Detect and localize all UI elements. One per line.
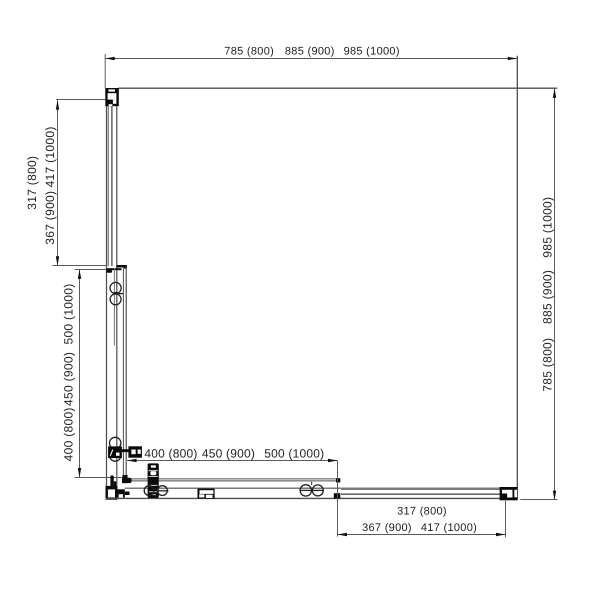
svg-text:417 (1000): 417 (1000)	[43, 126, 57, 187]
svg-text:885 (900): 885 (900)	[285, 45, 335, 57]
svg-text:417 (1000): 417 (1000)	[421, 522, 477, 534]
svg-text:400 (800): 400 (800)	[62, 407, 76, 461]
svg-text:785 (800): 785 (800)	[224, 45, 274, 57]
svg-text:400 (800): 400 (800)	[144, 446, 197, 460]
svg-text:500 (1000): 500 (1000)	[264, 446, 324, 460]
svg-text:450 (900): 450 (900)	[62, 352, 76, 406]
svg-text:317 (800): 317 (800)	[397, 506, 447, 518]
svg-text:985 (1000): 985 (1000)	[540, 197, 554, 258]
svg-text:885 (900): 885 (900)	[540, 270, 554, 324]
svg-text:367 (900): 367 (900)	[362, 522, 412, 534]
svg-text:317 (800): 317 (800)	[25, 156, 39, 210]
svg-text:785 (800): 785 (800)	[540, 338, 554, 392]
svg-text:367 (900): 367 (900)	[43, 191, 57, 245]
svg-text:500 (1000): 500 (1000)	[62, 283, 76, 344]
svg-text:985 (1000): 985 (1000)	[344, 45, 400, 57]
svg-text:450 (900): 450 (900)	[202, 446, 255, 460]
